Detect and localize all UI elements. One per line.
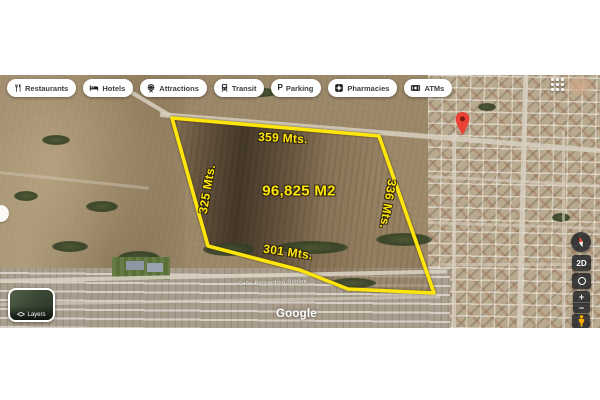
satellite-map[interactable]: Calle Bernardino Robles 359 Mts. 325 Mts… (0, 75, 600, 328)
layers-button[interactable]: Layers (8, 288, 55, 322)
transit-icon (220, 83, 229, 93)
category-attractions-button[interactable]: Attractions (140, 79, 207, 97)
compass-control[interactable] (571, 232, 591, 252)
category-label: Hotels (102, 84, 125, 93)
google-attribution: Google (276, 308, 317, 320)
layers-label: Layers (27, 312, 45, 318)
category-label: Parking (286, 84, 314, 93)
category-atms-button[interactable]: ATMs (404, 79, 452, 97)
pharmacies-icon (334, 83, 344, 93)
category-hotels-button[interactable]: Hotels (83, 79, 133, 97)
side-length-top: 359 Mts. (258, 130, 308, 147)
category-pharmacies-button[interactable]: Pharmacies (328, 79, 397, 97)
category-label: Attractions (159, 84, 199, 93)
restaurants-icon (13, 83, 22, 93)
parking-icon: P (277, 84, 282, 92)
category-label: Transit (232, 84, 257, 93)
category-toolbar: Restaurants Hotels Attractions (7, 79, 452, 97)
zoom-in-button[interactable]: + (573, 291, 590, 302)
zoom-out-button[interactable]: − (573, 302, 590, 313)
category-restaurants-button[interactable]: Restaurants (7, 79, 76, 97)
attractions-icon (146, 83, 156, 93)
category-label: Pharmacies (347, 84, 389, 93)
layers-icon (17, 311, 25, 318)
my-location-button[interactable] (572, 273, 591, 289)
parcel-outline (0, 75, 600, 328)
parcel-area-label: 96,825 M2 (262, 183, 336, 200)
apps-grid-icon[interactable] (551, 78, 564, 91)
compass-needle-icon (574, 235, 588, 249)
pegman-icon (577, 315, 586, 327)
hotels-icon (89, 83, 99, 93)
map-marker-pin[interactable] (455, 112, 470, 135)
target-icon (578, 277, 586, 285)
category-transit-button[interactable]: Transit (214, 79, 265, 97)
category-label: Restaurants (25, 84, 68, 93)
category-parking-button[interactable]: P Parking (271, 79, 321, 97)
screenshot-root: Calle Bernardino Robles 359 Mts. 325 Mts… (0, 0, 600, 400)
2d-view-button[interactable]: 2D (572, 255, 591, 271)
category-label: ATMs (424, 84, 444, 93)
pegman-button[interactable] (572, 314, 590, 328)
atms-icon (410, 83, 421, 93)
